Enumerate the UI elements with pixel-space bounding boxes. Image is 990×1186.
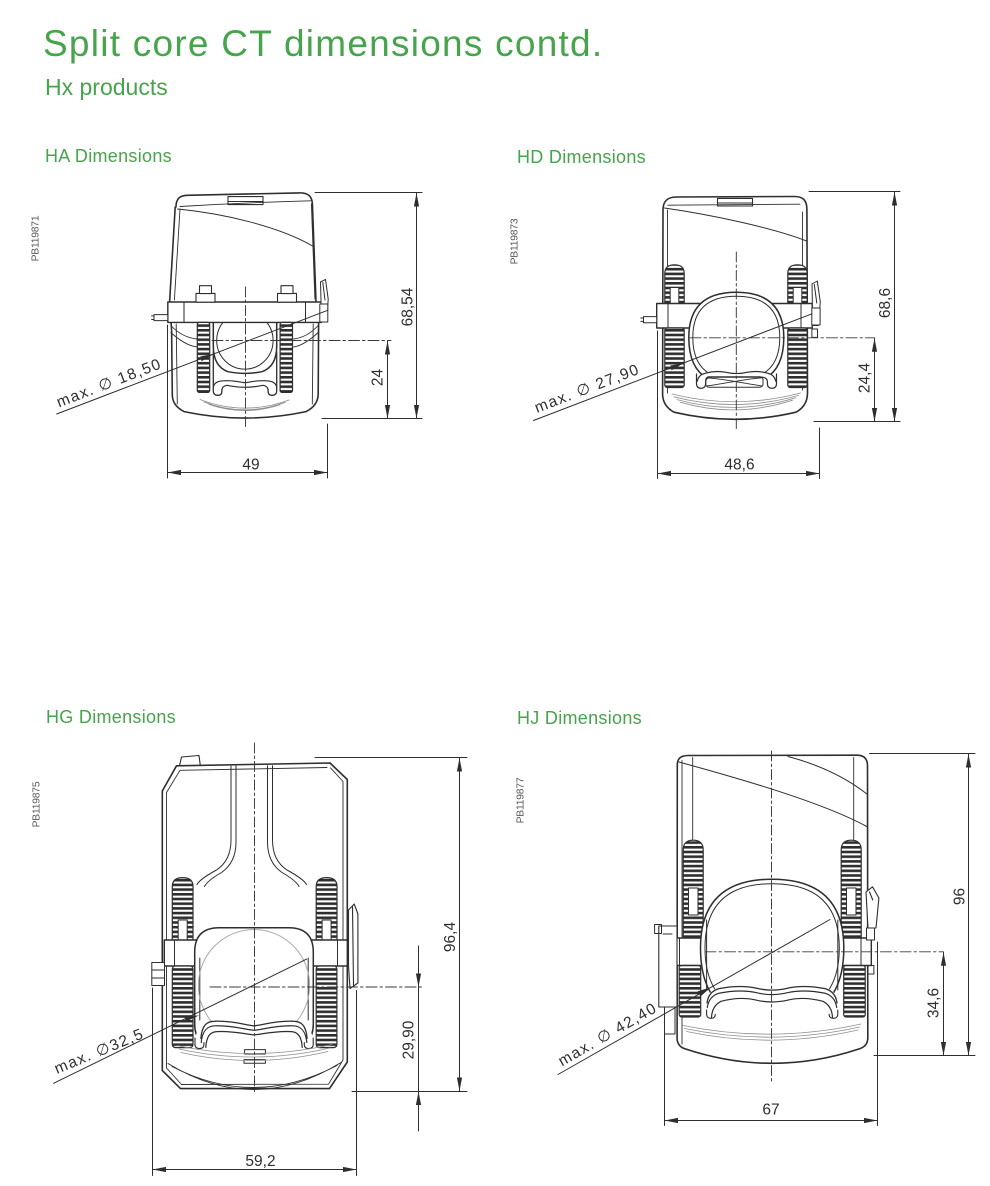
svg-text:max. ∅ 42,40: max. ∅ 42,40 [556, 1000, 661, 1070]
svg-text:49: 49 [242, 457, 259, 474]
svg-text:max. ∅32,5: max. ∅32,5 [52, 1025, 147, 1077]
svg-text:96: 96 [952, 888, 969, 905]
svg-text:max. ∅ 18,50: max. ∅ 18,50 [54, 355, 164, 411]
svg-text:96,4: 96,4 [442, 922, 459, 953]
svg-text:67: 67 [762, 1102, 779, 1119]
svg-text:59,2: 59,2 [245, 1153, 275, 1170]
svg-text:29,90: 29,90 [401, 1020, 418, 1059]
svg-text:34,6: 34,6 [926, 988, 943, 1018]
svg-text:48,6: 48,6 [724, 457, 754, 474]
svg-text:24,4: 24,4 [857, 363, 874, 394]
svg-text:max. ∅ 27,90: max. ∅ 27,90 [532, 361, 642, 417]
svg-text:24: 24 [370, 369, 387, 387]
svg-text:68,54: 68,54 [400, 287, 417, 326]
svg-text:68,6: 68,6 [877, 288, 894, 318]
